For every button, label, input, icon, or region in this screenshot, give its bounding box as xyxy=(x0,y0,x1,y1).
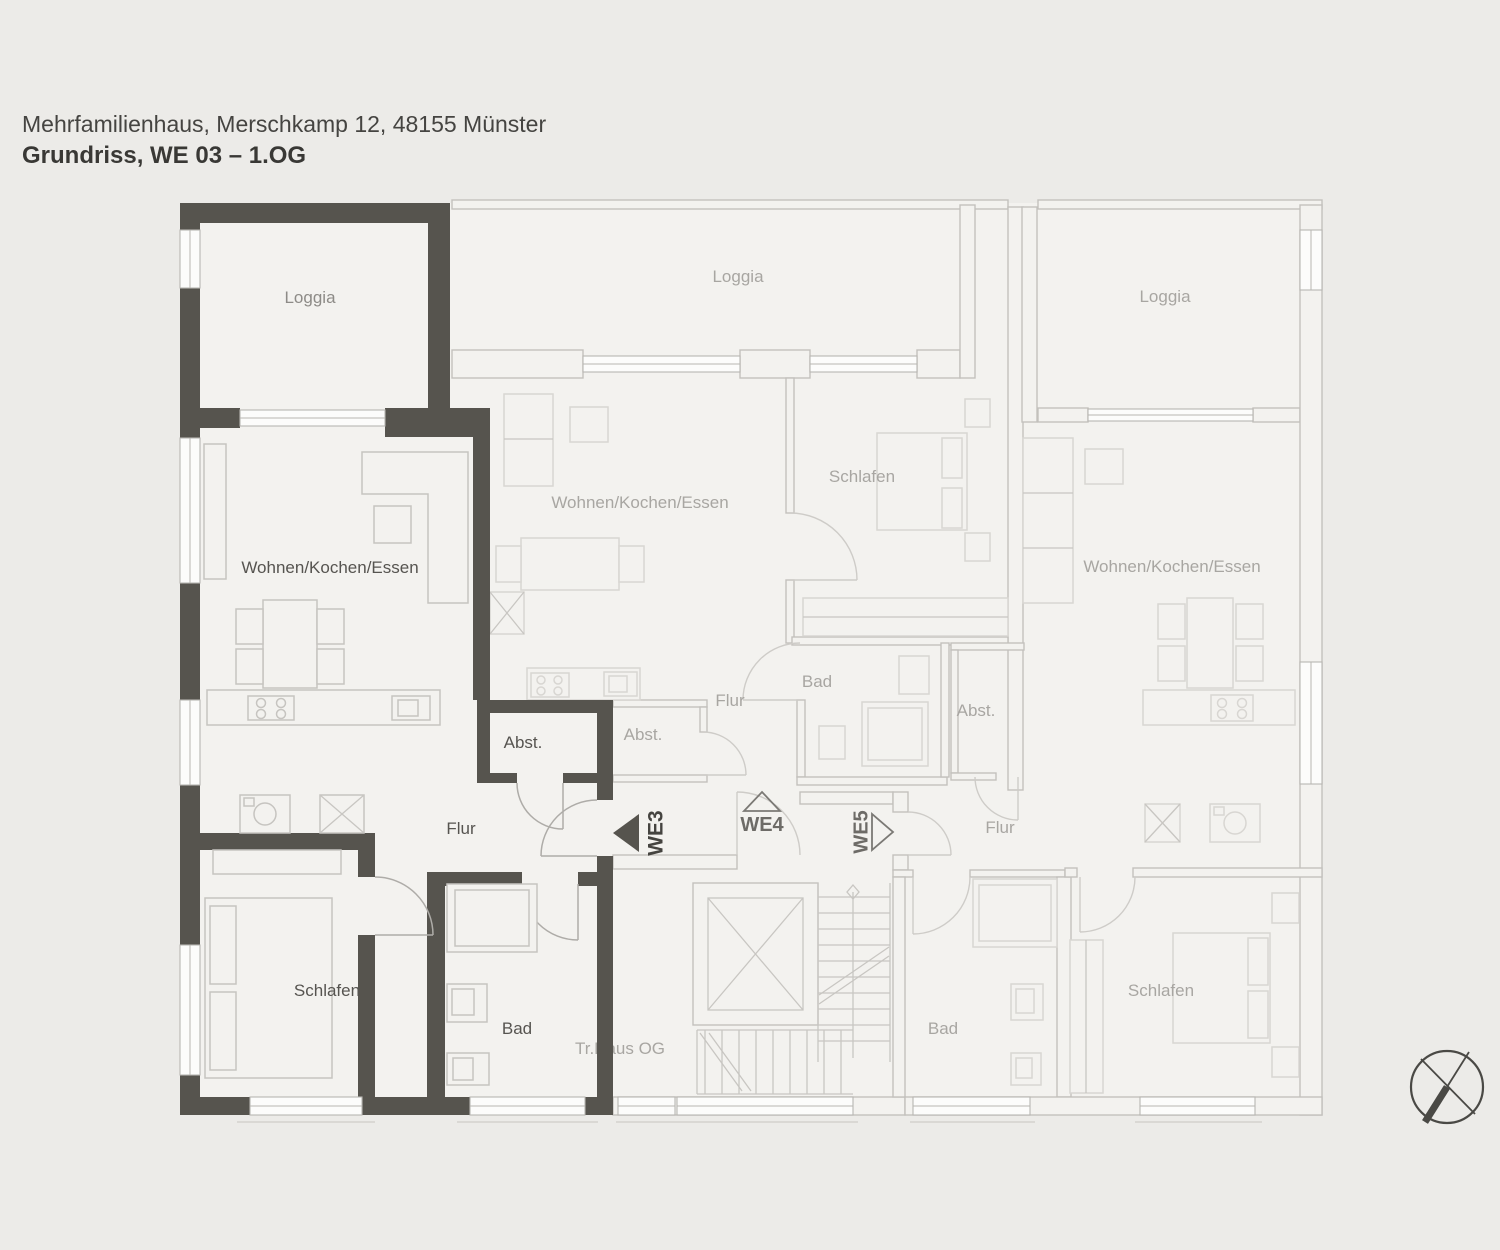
room-label-hall-we3: Flur xyxy=(446,819,476,838)
room-label-storage-we3: Abst. xyxy=(504,733,543,752)
room-label-bedroom-we4: Schlafen xyxy=(829,467,895,486)
room-label-bath-we4: Bad xyxy=(802,672,832,691)
room-label-loggia-we5: Loggia xyxy=(1139,287,1191,306)
room-label-living-we4: Wohnen/Kochen/Essen xyxy=(551,493,728,512)
room-label-loggia-we4: Loggia xyxy=(712,267,764,286)
room-label-bath-we3: Bad xyxy=(502,1019,532,1038)
room-label-storage-we5: Abst. xyxy=(957,701,996,720)
room-label-bath-we5: Bad xyxy=(928,1019,958,1038)
elevator-icon xyxy=(693,883,818,1025)
room-label-living-we5: Wohnen/Kochen/Essen xyxy=(1083,557,1260,576)
floor-plan-svg: Tr.Haus OG xyxy=(0,0,1500,1250)
stairwell-label: Tr.Haus OG xyxy=(575,1039,665,1058)
we3-marker-label: WE3 xyxy=(645,810,668,856)
room-label-loggia-we3: Loggia xyxy=(284,288,336,307)
room-label-storage-we4: Abst. xyxy=(624,725,663,744)
room-label-hall-we5: Flur xyxy=(985,818,1015,837)
room-label-bedroom-we5: Schlafen xyxy=(1128,981,1194,1000)
room-label-bedroom-we3: Schlafen xyxy=(294,981,360,1000)
we4-marker-label: WE4 xyxy=(740,814,784,836)
compass-north-icon xyxy=(1411,1051,1483,1123)
room-label-hall-we4: Flur xyxy=(715,691,745,710)
we5-marker-label: WE5 xyxy=(850,810,872,853)
room-label-living-we3: Wohnen/Kochen/Essen xyxy=(241,558,418,577)
floorplan-page: Mehrfamilienhaus, Merschkamp 12, 48155 M… xyxy=(0,0,1500,1250)
